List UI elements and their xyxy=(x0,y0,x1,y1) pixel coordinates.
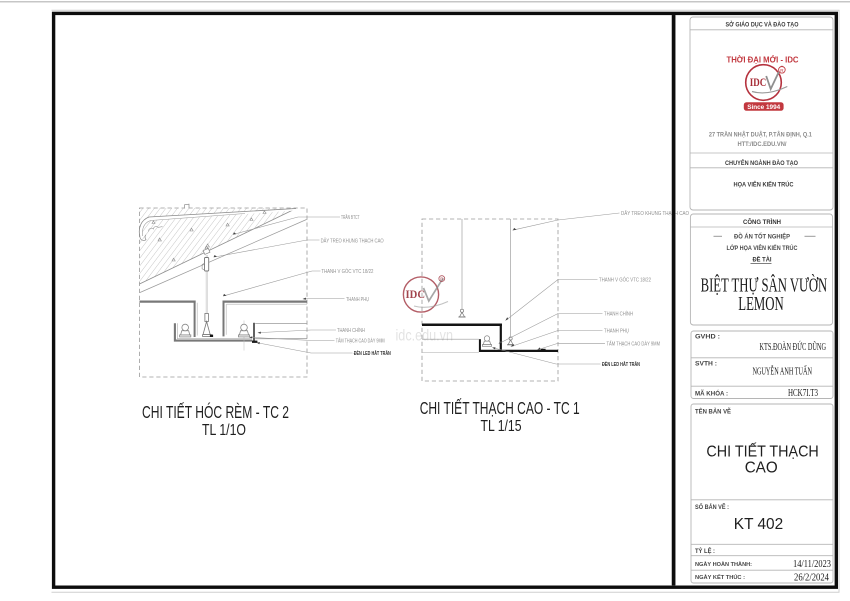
svg-text:THANH V GÓC VTC 18/22: THANH V GÓC VTC 18/22 xyxy=(599,277,651,284)
svg-text:NGÀY KẾT THÚC :: NGÀY KẾT THÚC : xyxy=(695,574,745,581)
svg-text:SVTH :: SVTH : xyxy=(695,361,717,367)
svg-text:THANH V GÓC VTC 18/22: THANH V GÓC VTC 18/22 xyxy=(321,268,373,275)
svg-text:THỜI ĐẠI MỚI - IDC: THỜI ĐẠI MỚI - IDC xyxy=(727,53,799,64)
svg-text:CHI TIẾT HÓC RÈM - TC 2: CHI TIẾT HÓC RÈM - TC 2 xyxy=(142,401,289,422)
svg-text:TL 1/15: TL 1/15 xyxy=(481,418,522,435)
svg-text:14/11/2023: 14/11/2023 xyxy=(793,558,831,570)
svg-text:ĐÈN LED HẮT TRẦN: ĐÈN LED HẮT TRẦN xyxy=(354,349,391,357)
svg-text:LEMON: LEMON xyxy=(738,294,784,315)
svg-text:IDC: IDC xyxy=(406,289,426,301)
svg-text:R: R xyxy=(440,276,443,281)
svg-text:THANH CHÍNH: THANH CHÍNH xyxy=(337,327,365,334)
svg-text:SỞ GIÁO DỤC VÀ ĐÀO TẠO: SỞ GIÁO DỤC VÀ ĐÀO TẠO xyxy=(726,22,799,29)
svg-text:TỶ LỆ :: TỶ LỆ : xyxy=(695,547,715,555)
svg-text:TẤM THẠCH CAO DÀY 9MM: TẤM THẠCH CAO DÀY 9MM xyxy=(336,338,385,345)
svg-text:MÃ KHÓA :: MÃ KHÓA : xyxy=(695,389,728,397)
svg-text:Since 1994: Since 1994 xyxy=(747,104,780,111)
svg-text:HCK7I.T3: HCK7I.T3 xyxy=(788,388,818,399)
svg-text:TL 1/1O: TL 1/1O xyxy=(202,422,246,439)
svg-text:CHUYÊN NGÀNH ĐÀO TẠO: CHUYÊN NGÀNH ĐÀO TẠO xyxy=(725,158,798,167)
svg-text:CHI TIẾT THẠCH: CHI TIẾT THẠCH xyxy=(706,444,818,461)
svg-text:idc.edu.vn: idc.edu.vn xyxy=(396,328,454,345)
svg-text:THANH PHỤ: THANH PHỤ xyxy=(346,297,369,303)
svg-text:TRẦN BTCT: TRẦN BTCT xyxy=(341,214,360,221)
svg-text:THANH CHÍNH: THANH CHÍNH xyxy=(604,310,633,317)
svg-text:TÊN BẢN VẼ: TÊN BẢN VẼ xyxy=(695,407,731,415)
svg-text:KT 402: KT 402 xyxy=(734,516,783,533)
svg-text:DÂY TREO KHUNG THẠCH CAO: DÂY TREO KHUNG THẠCH CAO xyxy=(321,237,384,244)
svg-text:NGÀY HOÀN THÀNH:: NGÀY HOÀN THÀNH: xyxy=(695,561,752,568)
svg-text:GVHD :: GVHD : xyxy=(695,335,720,341)
svg-text:ĐÈN LED HẮT TRẦN: ĐÈN LED HẮT TRẦN xyxy=(602,360,640,368)
svg-text:TẤM THẠCH CAO DÀY 9MM: TẤM THẠCH CAO DÀY 9MM xyxy=(607,340,661,347)
svg-text:NGUYỄN ANH TUẤN: NGUYỄN ANH TUẤN xyxy=(753,365,813,378)
svg-text:CÔNG TRÌNH: CÔNG TRÌNH xyxy=(743,217,781,226)
svg-text:CAO: CAO xyxy=(745,460,778,477)
svg-text:SỐ BẢN VẼ :: SỐ BẢN VẼ : xyxy=(695,504,729,511)
svg-text:THANH PHỤ: THANH PHỤ xyxy=(604,328,629,334)
svg-text:26/2/2024: 26/2/2024 xyxy=(794,572,829,584)
svg-text:HTT:/IDC.EDU.VN/: HTT:/IDC.EDU.VN/ xyxy=(738,141,787,148)
svg-text:KTS.ĐOÀN ĐỨC DŨNG: KTS.ĐOÀN ĐỨC DŨNG xyxy=(760,341,827,353)
svg-text:DÂY TREO KHUNG THẠCH CAO: DÂY TREO KHUNG THẠCH CAO xyxy=(621,210,689,217)
svg-text:CHI TIẾT THẠCH CAO - TC 1: CHI TIẾT THẠCH CAO - TC 1 xyxy=(420,397,580,418)
svg-text:IDC: IDC xyxy=(750,75,767,89)
